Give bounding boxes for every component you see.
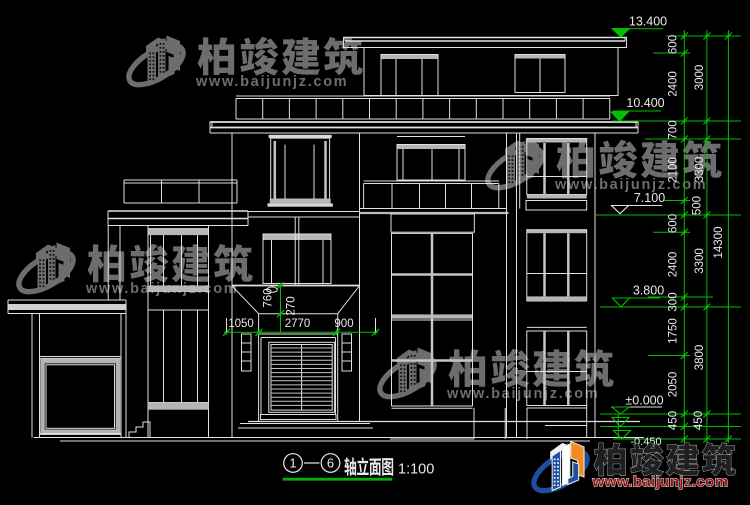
svg-text:2400: 2400: [668, 71, 680, 97]
svg-text:2050: 2050: [668, 372, 680, 398]
svg-text:2770: 2770: [285, 318, 311, 330]
svg-text:450: 450: [693, 411, 705, 430]
svg-text:14300: 14300: [713, 227, 725, 259]
svg-text:600: 600: [668, 214, 680, 233]
svg-text:www.baijunjz.com: www.baijunjz.com: [592, 474, 729, 491]
svg-text:1: 1: [289, 456, 296, 471]
svg-text:±0.000: ±0.000: [625, 394, 663, 408]
svg-text:1750: 1750: [668, 318, 680, 344]
svg-text:3000: 3000: [694, 65, 706, 91]
svg-text:10.400: 10.400: [626, 96, 664, 110]
svg-text:3.800: 3.800: [633, 284, 664, 298]
svg-text:270: 270: [286, 296, 298, 315]
svg-text:760: 760: [263, 288, 275, 307]
svg-text:300: 300: [668, 292, 680, 311]
svg-text:7.100: 7.100: [634, 191, 665, 205]
svg-text:1050: 1050: [228, 318, 254, 330]
svg-text:6: 6: [327, 456, 334, 471]
svg-text:1:100: 1:100: [398, 462, 434, 478]
svg-text:700: 700: [668, 120, 680, 139]
svg-text:www.baijunjz.com: www.baijunjz.com: [195, 74, 348, 90]
svg-text:www.baijunjz.com: www.baijunjz.com: [446, 386, 599, 402]
svg-text:2100: 2100: [668, 157, 680, 183]
svg-text:3300: 3300: [694, 157, 706, 183]
svg-text:3800: 3800: [694, 345, 706, 371]
svg-text:13.400: 13.400: [629, 15, 667, 29]
svg-text:900: 900: [334, 318, 353, 330]
svg-text:600: 600: [668, 35, 680, 54]
svg-text:2400: 2400: [668, 252, 680, 278]
svg-text:450: 450: [668, 411, 680, 430]
svg-text:500: 500: [692, 196, 704, 215]
svg-text:3300: 3300: [694, 248, 706, 274]
